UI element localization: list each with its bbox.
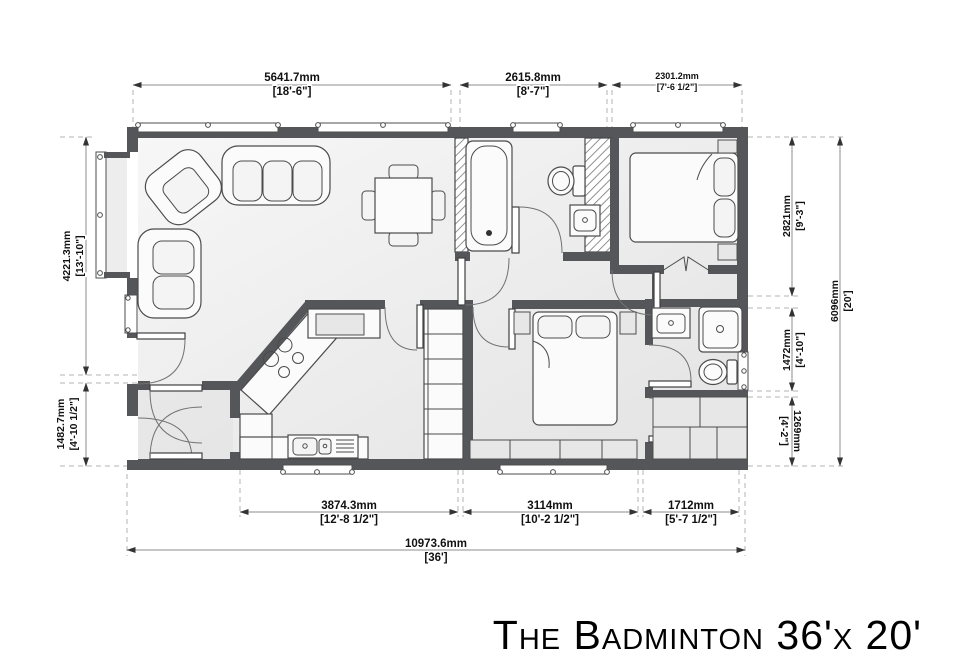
master-bedroom [630,140,738,260]
plan-title: The Badminton 36'x 20' [493,612,922,658]
dim-bottom-1-mm: 3874.3mm [321,500,377,512]
dim-right-overall-ft: [20'] [842,290,854,311]
shower-basin [652,308,690,338]
bathtub [466,141,512,251]
dim-top-1-mm: 5641.7mm [264,72,320,84]
dim-left-2-ft: [4'-10 1/2"] [68,398,80,451]
toilet [548,166,585,196]
dim-right-overall-mm: 6096mm [829,280,841,322]
dim-right-2-ft: [4'-10"] [794,332,806,367]
dim-bottom-2-mm: 3114mm [527,500,572,512]
dim-right-3-mm: 1269mm [791,410,803,452]
dim-bottom-3-ft: [5'-7 1/2"] [665,514,717,526]
floor-plan-canvas: 5641.7mm [18'-6"] 2615.8mm [8'-7"] 2301.… [0,0,980,660]
dim-top-3-ft: [7'-6 1/2"] [657,82,697,92]
double-bed [630,153,738,242]
dim-bottom-3-mm: 1712mm [668,500,714,512]
wardrobe-column [424,309,463,459]
toilet-2 [699,360,737,385]
dim-right-2-mm: 1472mm [781,329,793,371]
dim-bottom-overall-ft: [36'] [424,552,447,564]
basin [570,205,600,236]
dim-top-2-mm: 2615.8mm [505,72,561,84]
shower-cubicle [699,307,742,352]
dim-bottom-overall-mm: 10973.6mm [405,538,467,550]
dim-top-3-mm: 2301.2mm [655,71,699,81]
dim-right-1-ft: [9'-3"] [794,201,806,231]
dim-left-1-ft: [13'-10"] [74,235,86,276]
storage-units [653,397,747,459]
double-bed-2 [533,312,617,425]
dim-right-3-ft: [4'-2"] [778,416,790,446]
sofa-two-seat [138,229,201,318]
dim-bottom-2-ft: [10'-2 1/2"] [521,514,579,526]
dim-left-2-mm: 1482.7mm [55,399,67,450]
dim-bottom-1-ft: [12'-8 1/2"] [320,514,378,526]
sofa-three-seat [222,146,330,205]
dim-left-1-mm: 4221.3mm [61,231,73,282]
dim-right-1-mm: 2821mm [781,195,793,237]
dim-top-1-ft: [18'-6"] [273,86,312,98]
kitchen-sink [288,435,358,458]
dim-top-2-ft: [8'-7"] [517,86,550,98]
